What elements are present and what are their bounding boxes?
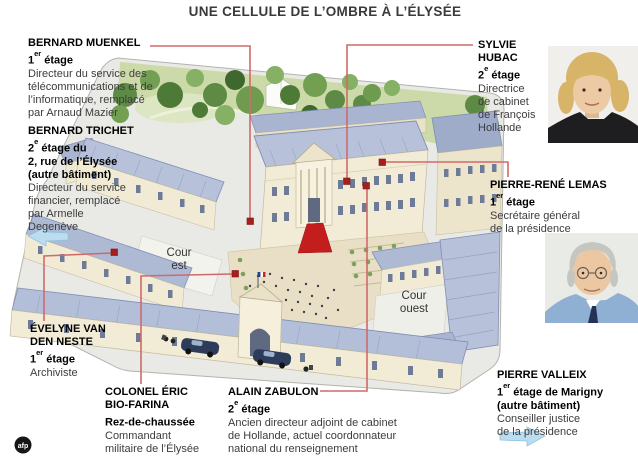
person-floor: 2e étage du [28, 138, 168, 156]
label-alain-zabulon: ALAIN ZABULON 2e étage Ancien directeur … [228, 386, 428, 456]
label-pierre-valleix: PIERRE VALLEIX 1er étage de Marigny (aut… [497, 369, 637, 439]
photo-sylvie-hubac [548, 46, 638, 143]
label-evelyne-van-den-neste: ÉVELYNE VAN DEN NESTE 1er étage Archivis… [30, 323, 140, 380]
person-desc: Directrice de cabinet de François Hollan… [478, 83, 553, 135]
courtyard-west-label: Cour ouest [388, 290, 440, 316]
marker-lemas [379, 159, 386, 166]
person-building: 2, rue de l’Élysée (autre bâtiment) [28, 156, 168, 182]
afp-logo: afp [15, 437, 32, 454]
label-pierre-rene-lemas: PIERRE-RENÉ LEMAS 1er étage Secrétaire g… [490, 179, 635, 236]
person-floor: 2e étage [478, 65, 553, 83]
infographic: UNE CELLULE DE L’OMBRE À L’ÉLYSÉE [0, 0, 638, 461]
person-name: BERNARD TRICHET [28, 125, 168, 138]
person-name: PIERRE VALLEIX [497, 369, 637, 382]
label-colonel-bio-farina: COLONEL ÉRIC BIO-FARINA Rez-de-chaussée … [105, 386, 225, 456]
person-name: SYLVIE HUBAC [478, 39, 553, 65]
person-floor: Rez-de-chaussée [105, 412, 225, 430]
palace-building [254, 121, 428, 252]
person-name: COLONEL ÉRIC BIO-FARINA [105, 386, 225, 412]
marker-zabulon [363, 183, 370, 190]
person-desc: Commandant militaire de l’Élysée [105, 430, 225, 456]
person-desc: Directeur du service des télécommunicati… [28, 68, 178, 120]
person-floor: 1er étage de Marigny [497, 382, 637, 400]
person-desc: Archiviste [30, 367, 140, 380]
french-flag [258, 272, 266, 277]
photo-pierre-rene-lemas [545, 233, 638, 323]
svg-text:afp: afp [18, 443, 29, 450]
person-desc: Conseiller justice de la présidence [497, 413, 637, 439]
person-name: BERNARD MUENKEL [28, 37, 178, 50]
person-desc: Ancien directeur adjoint de cabinet de H… [228, 417, 428, 456]
person-floor: 1er étage [30, 349, 140, 367]
person-name: PIERRE-RENÉ LEMAS [490, 179, 635, 192]
courtyard-east-label: Cour est [158, 247, 200, 273]
marker-hubac [344, 178, 351, 185]
person-desc: Directeur du service financier, remplacé… [28, 182, 168, 234]
person-building: (autre bâtiment) [497, 400, 637, 413]
label-bernard-muenkel: BERNARD MUENKEL 1er étage Directeur du s… [28, 37, 178, 120]
person-name: ÉVELYNE VAN DEN NESTE [30, 323, 140, 349]
label-sylvie-hubac: SYLVIE HUBAC 2e étage Directrice de cabi… [478, 39, 553, 135]
marker-vandenneste [111, 249, 118, 256]
person-name: ALAIN ZABULON [228, 386, 428, 399]
label-bernard-trichet: BERNARD TRICHET 2e étage du 2, rue de l’… [28, 125, 168, 234]
person-floor: 1er étage [28, 50, 178, 68]
person-floor: 2e étage [228, 399, 428, 417]
marker-biofarina [232, 271, 239, 278]
person-desc: Secrétaire général de la présidence [490, 210, 635, 236]
marker-muenkel [247, 218, 254, 225]
person-floor: 1er étage [490, 192, 635, 210]
